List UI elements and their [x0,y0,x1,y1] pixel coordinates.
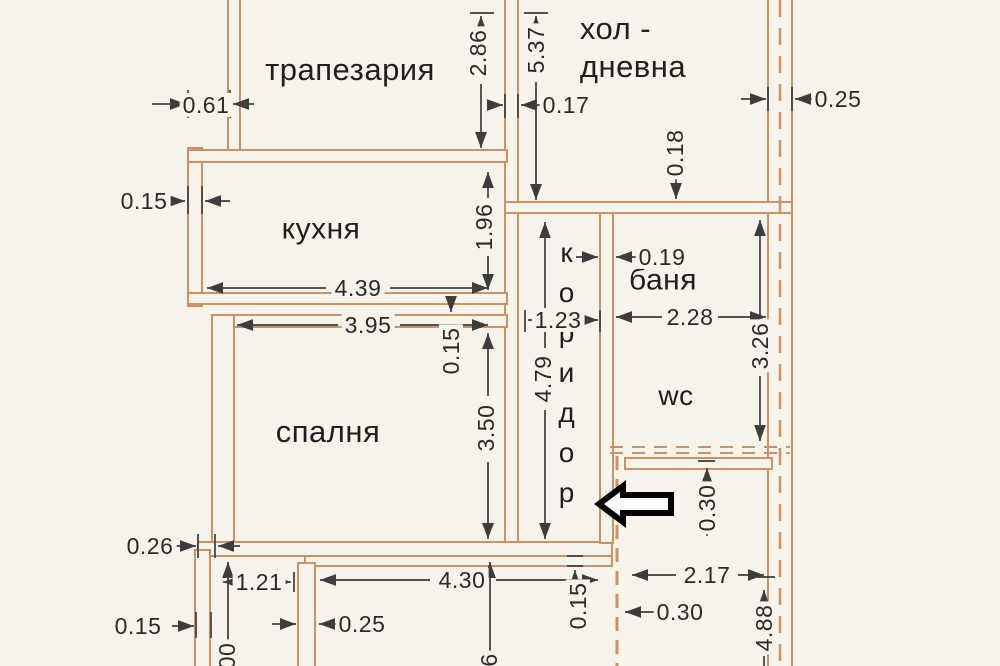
dimension-label-d-026: 0.26 [124,534,177,558]
dimension-label-d-030-mid: 0.30 [695,482,719,535]
dimension-label-d-025-b: 0.25 [336,612,389,636]
dimension-label-d-cut-00: 00 [215,640,239,666]
room-label-hol-dnevna: хол - дневна [580,10,686,86]
dimension-label-d-015-bl: 0.15 [112,614,165,638]
dimension-label-d-286: 2.86 [466,27,490,80]
floorplan-scan: трапезарияхол - дневнакухняспалнябаняwcк… [0,0,1000,666]
dimension-label-d-cut-6: 6 [477,650,501,666]
labels-layer: трапезарияхол - дневнакухняспалнябаняwcк… [0,0,1000,666]
dimension-label-d-018: 0.18 [663,127,687,180]
room-label-koridor: коридор [552,237,580,517]
dimension-label-d-015-left: 0.15 [118,189,171,213]
dimension-label-d-196: 1.96 [472,201,496,254]
dimension-label-d-061: 0.61 [180,93,233,117]
dimension-label-d-121: 1.21 [233,570,286,594]
dimension-label-d-025-top: 0.25 [812,87,865,111]
dimension-label-d-019: 0.19 [636,245,689,269]
dimension-label-d-015-bc: 0.15 [566,580,590,633]
dimension-label-d-537: 5.37 [524,24,548,77]
dimension-label-d-350: 3.50 [474,402,498,455]
room-label-trapezaria: трапезария [265,51,435,89]
dimension-label-d-217: 2.17 [681,563,734,587]
dimension-label-d-479: 4.79 [531,353,555,406]
dimension-label-d-439: 4.39 [332,276,385,300]
dimension-label-d-017: 0.17 [540,93,593,117]
room-label-kuhnya: кухня [282,212,361,249]
dimension-label-d-488: 4.88 [752,602,776,655]
dimension-label-d-030-br: 0.30 [654,600,707,624]
dimension-label-d-015-mid: 0.15 [439,325,463,378]
dimension-label-d-395: 3.95 [342,313,395,337]
dimension-label-d-123: 1.23 [532,308,585,332]
room-label-wc: wc [658,379,693,413]
dimension-label-d-430: 4.30 [436,568,489,592]
dimension-label-d-228: 2.28 [664,305,717,329]
room-label-spalnya: спалня [276,413,381,451]
dimension-label-d-326: 3.26 [748,320,772,373]
